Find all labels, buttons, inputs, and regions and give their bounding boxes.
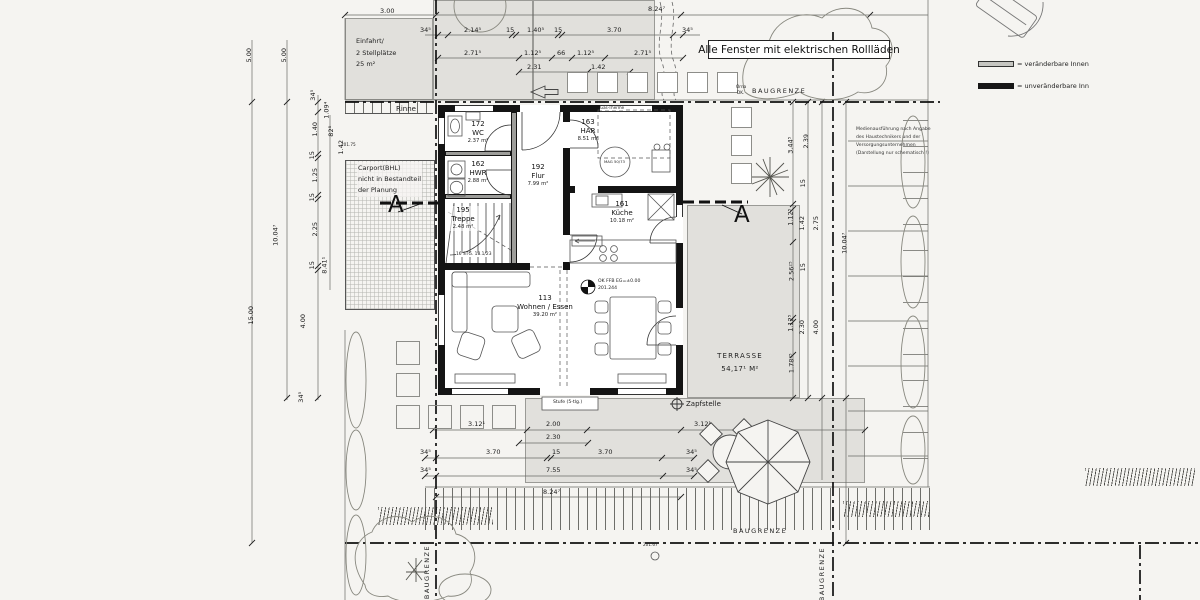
dim: 2.14⁵ (464, 27, 481, 34)
dim: 1.12⁵ (787, 315, 794, 332)
dim: 1.12⁵ (787, 209, 794, 226)
dim: 15 (800, 263, 807, 271)
dim: 15.00 (248, 306, 255, 325)
dim: 3.70 (598, 449, 612, 456)
entrance-arrow (531, 86, 558, 98)
paving-slab (657, 72, 678, 93)
dim: 8.24⁷ (648, 6, 665, 13)
orna-label1: Orna (736, 85, 746, 89)
room-flur-area: 7.99 m² (518, 181, 558, 188)
media-line3: Versorgungsunternehmen (856, 142, 940, 150)
dim: 3.12¹ (694, 421, 711, 428)
dim: 34⁵ (420, 467, 431, 474)
mag-label: MAG 50/73 (604, 160, 625, 164)
terrasse-line2: 54,17¹ M² (700, 363, 780, 376)
carport-line2: nicht in Bestandteil (358, 174, 421, 185)
media-line2: des Haustechnikers und der (856, 134, 940, 142)
section-marker-a-left: A (388, 192, 404, 218)
dim: 4.00 (813, 320, 820, 334)
dim: 34⁵ (298, 392, 305, 403)
room-treppe: 195 Treppe 2.48 m² (446, 206, 480, 231)
ffb-label1: OK FFB EG=±0.00 (598, 280, 640, 285)
paving-slab (567, 72, 588, 93)
dim: 1.40⁵ (527, 27, 544, 34)
room-har-area: 8.51 m² (568, 136, 608, 143)
dim: 1.12⁵ (577, 50, 594, 57)
section-cut-lines (380, 202, 748, 203)
dimension-lines (252, 0, 930, 600)
einfahrt-line3: 25 m² (356, 59, 396, 71)
dim: 1.40 (312, 122, 319, 136)
dim: 1.78³⁵ (789, 353, 796, 373)
room-kueche-no: 161 (600, 200, 644, 209)
dim: 2.25 (312, 222, 319, 236)
room-treppe-no: 195 (446, 206, 480, 215)
neighbor-plan-fragment (975, 0, 1043, 38)
dim: 7.55 (546, 467, 560, 474)
room-hwr: 162 HWR 2.88 m² (458, 160, 498, 185)
garden-slab (492, 405, 516, 429)
living-furniture (452, 272, 666, 383)
zapfstelle-label: Zapfstelle (686, 401, 721, 408)
dim: 15 (800, 179, 807, 187)
dim: 15 (309, 261, 316, 269)
dim: 34⁵ (686, 449, 697, 456)
window-note-banner: Alle Fenster mit elektrischen Rollläden (708, 40, 890, 59)
garden-slab (396, 405, 420, 429)
room-kueche-area: 10.18 m² (600, 218, 644, 225)
dim: 1.42 (338, 140, 345, 154)
dim: 2.71⁵ (634, 50, 651, 57)
room-wc-name: WC (458, 129, 498, 138)
gastherme-label: Gas-Therme (600, 106, 624, 110)
paving-slab (731, 135, 752, 156)
room-har: 163 HAR 8.51 m² (568, 118, 608, 143)
baugrenze-label-left: BAUGRENZE (423, 545, 431, 599)
dim: 82⁵ (328, 126, 335, 137)
paving-slab (717, 72, 738, 93)
media-line1: Medienausführung nach Angabe (856, 126, 940, 134)
paving-slab (731, 163, 752, 184)
room-har-no: 163 (568, 118, 608, 127)
dim: 3.00 (380, 8, 394, 15)
legend-label-variable: = veränderbare Innen (1017, 60, 1089, 68)
dim: 8.41¹ (321, 257, 328, 274)
paving-slab (687, 72, 708, 93)
einfahrt-label: Einfahrt/ 2 Stellplätze 25 m² (356, 36, 396, 71)
room-har-name: HAR (568, 127, 608, 136)
einfahrt-line1: Einfahrt/ (356, 36, 396, 48)
baugrenze-label-top: BAUGRENZE (752, 87, 806, 95)
dim: 1.25 (312, 168, 319, 182)
paving-slab (627, 72, 648, 93)
zapfstelle-symbol (670, 397, 684, 411)
media-note: Medienausführung nach Angabe des Haustec… (856, 126, 940, 158)
room-hwr-no: 162 (458, 160, 498, 169)
dim: 4.00 (300, 314, 307, 328)
media-line4: (Darstellung nur schematisch !) (856, 150, 940, 158)
dim: 1.09⁴ (323, 102, 330, 119)
dim: 1.42 (591, 64, 605, 71)
carport-line1: Carport(BHL) (358, 163, 421, 174)
paving-slab (597, 72, 618, 93)
dim: 15 (552, 449, 560, 456)
room-kueche: 161 Küche 10.18 m² (600, 200, 644, 225)
orna-label2: DK. (737, 91, 744, 95)
dashed-lines (448, 2, 676, 388)
dim: 3.70 (486, 449, 500, 456)
room-wc-no: 172 (458, 120, 498, 129)
dim: 2.00 (546, 421, 560, 428)
dining-furniture (595, 297, 671, 359)
floor-plan-sheet: Alle Fenster mit elektrischen Rollläden … (0, 0, 1200, 600)
dim: 3.12¹ (468, 421, 485, 428)
room-wc: 172 WC 2.37 m² (458, 120, 498, 145)
dim: 3.70 (607, 27, 621, 34)
garden-slab (396, 373, 420, 397)
dim: 5.00 (246, 48, 253, 62)
room-kueche-name: Küche (600, 209, 644, 218)
room-treppe-name: Treppe (446, 215, 480, 224)
garden-slab (428, 405, 452, 429)
legend-swatch-fixed (978, 83, 1014, 89)
dim: 2.75 (813, 216, 820, 230)
dim: 10.04⁷ (841, 233, 848, 254)
dim: 3.44⁵ (787, 137, 794, 154)
dim: 34⁵ (310, 90, 317, 101)
terrasse-line1: TERRASSE (700, 350, 780, 363)
dim: 34⁵ (686, 467, 697, 474)
dim: 15 (506, 27, 514, 34)
legend-label-fixed: = unveränderbare Inn (1017, 82, 1089, 90)
dim: 34⁵ (420, 27, 431, 34)
room-treppe-area: 2.48 m² (446, 224, 480, 231)
room-wohnen-name: Wohnen / Essen (508, 303, 582, 312)
dim: 15 (309, 151, 316, 159)
room-flur-no: 192 (518, 163, 558, 172)
terrace-furniture (697, 419, 810, 504)
dim: 2.31 (527, 64, 541, 71)
room-wc-area: 2.37 m² (458, 138, 498, 145)
room-hwr-name: HWR (458, 169, 498, 178)
dim: 2.30 (799, 320, 806, 334)
garden-slab (396, 341, 420, 365)
section-marker-a-right: A (734, 202, 750, 228)
dim: 2.71⁵ (464, 50, 481, 57)
room-wohnen-area: 39.20 m² (508, 312, 582, 319)
dim: 10.04⁷ (272, 225, 279, 246)
dim: 15 (554, 27, 562, 34)
stufe-label: Stufe (5-tlg.) (553, 401, 582, 406)
dim: 5.00 (281, 48, 288, 62)
einfahrt-line2: 2 Stellplätze (356, 48, 396, 60)
dim: 2.56²⁵ (789, 261, 796, 281)
room-flur: 192 Flur 7.99 m² (518, 163, 558, 188)
treppe-stg-label: 16 STG. 18.1/23 (456, 253, 492, 257)
baugrenze-label-bottom: BAUGRENZE (733, 527, 787, 535)
level-point-symbol (581, 280, 595, 294)
paving-slab (731, 107, 752, 128)
boundary-point (651, 552, 659, 560)
level-label-bottom: 201.67 (643, 543, 658, 547)
terrasse-label: TERRASSE 54,17¹ M² (700, 350, 780, 377)
dim: 66 (557, 50, 565, 57)
dim: 34⁵ (420, 449, 431, 456)
dim: 15 (309, 193, 316, 201)
legend-swatch-variable (978, 61, 1014, 67)
dim: 8.24⁷ (543, 489, 560, 496)
dim: 2.39 (803, 134, 810, 148)
rinne-label: Rinne (396, 106, 416, 113)
dim: 2.30 (546, 434, 560, 441)
baugrenze-label-right: BAUGRENZE (818, 547, 826, 600)
room-hwr-area: 2.88 m² (458, 178, 498, 185)
dim: 1.42 (799, 216, 806, 230)
room-wohnen: 113 Wohnen / Essen 39.20 m² (508, 294, 582, 319)
dim: 1.12⁵ (524, 50, 541, 57)
room-flur-name: Flur (518, 172, 558, 181)
dim: 34⁵ (682, 27, 693, 34)
ffb-label2: 201.244 (598, 287, 617, 292)
room-wohnen-no: 113 (508, 294, 582, 303)
